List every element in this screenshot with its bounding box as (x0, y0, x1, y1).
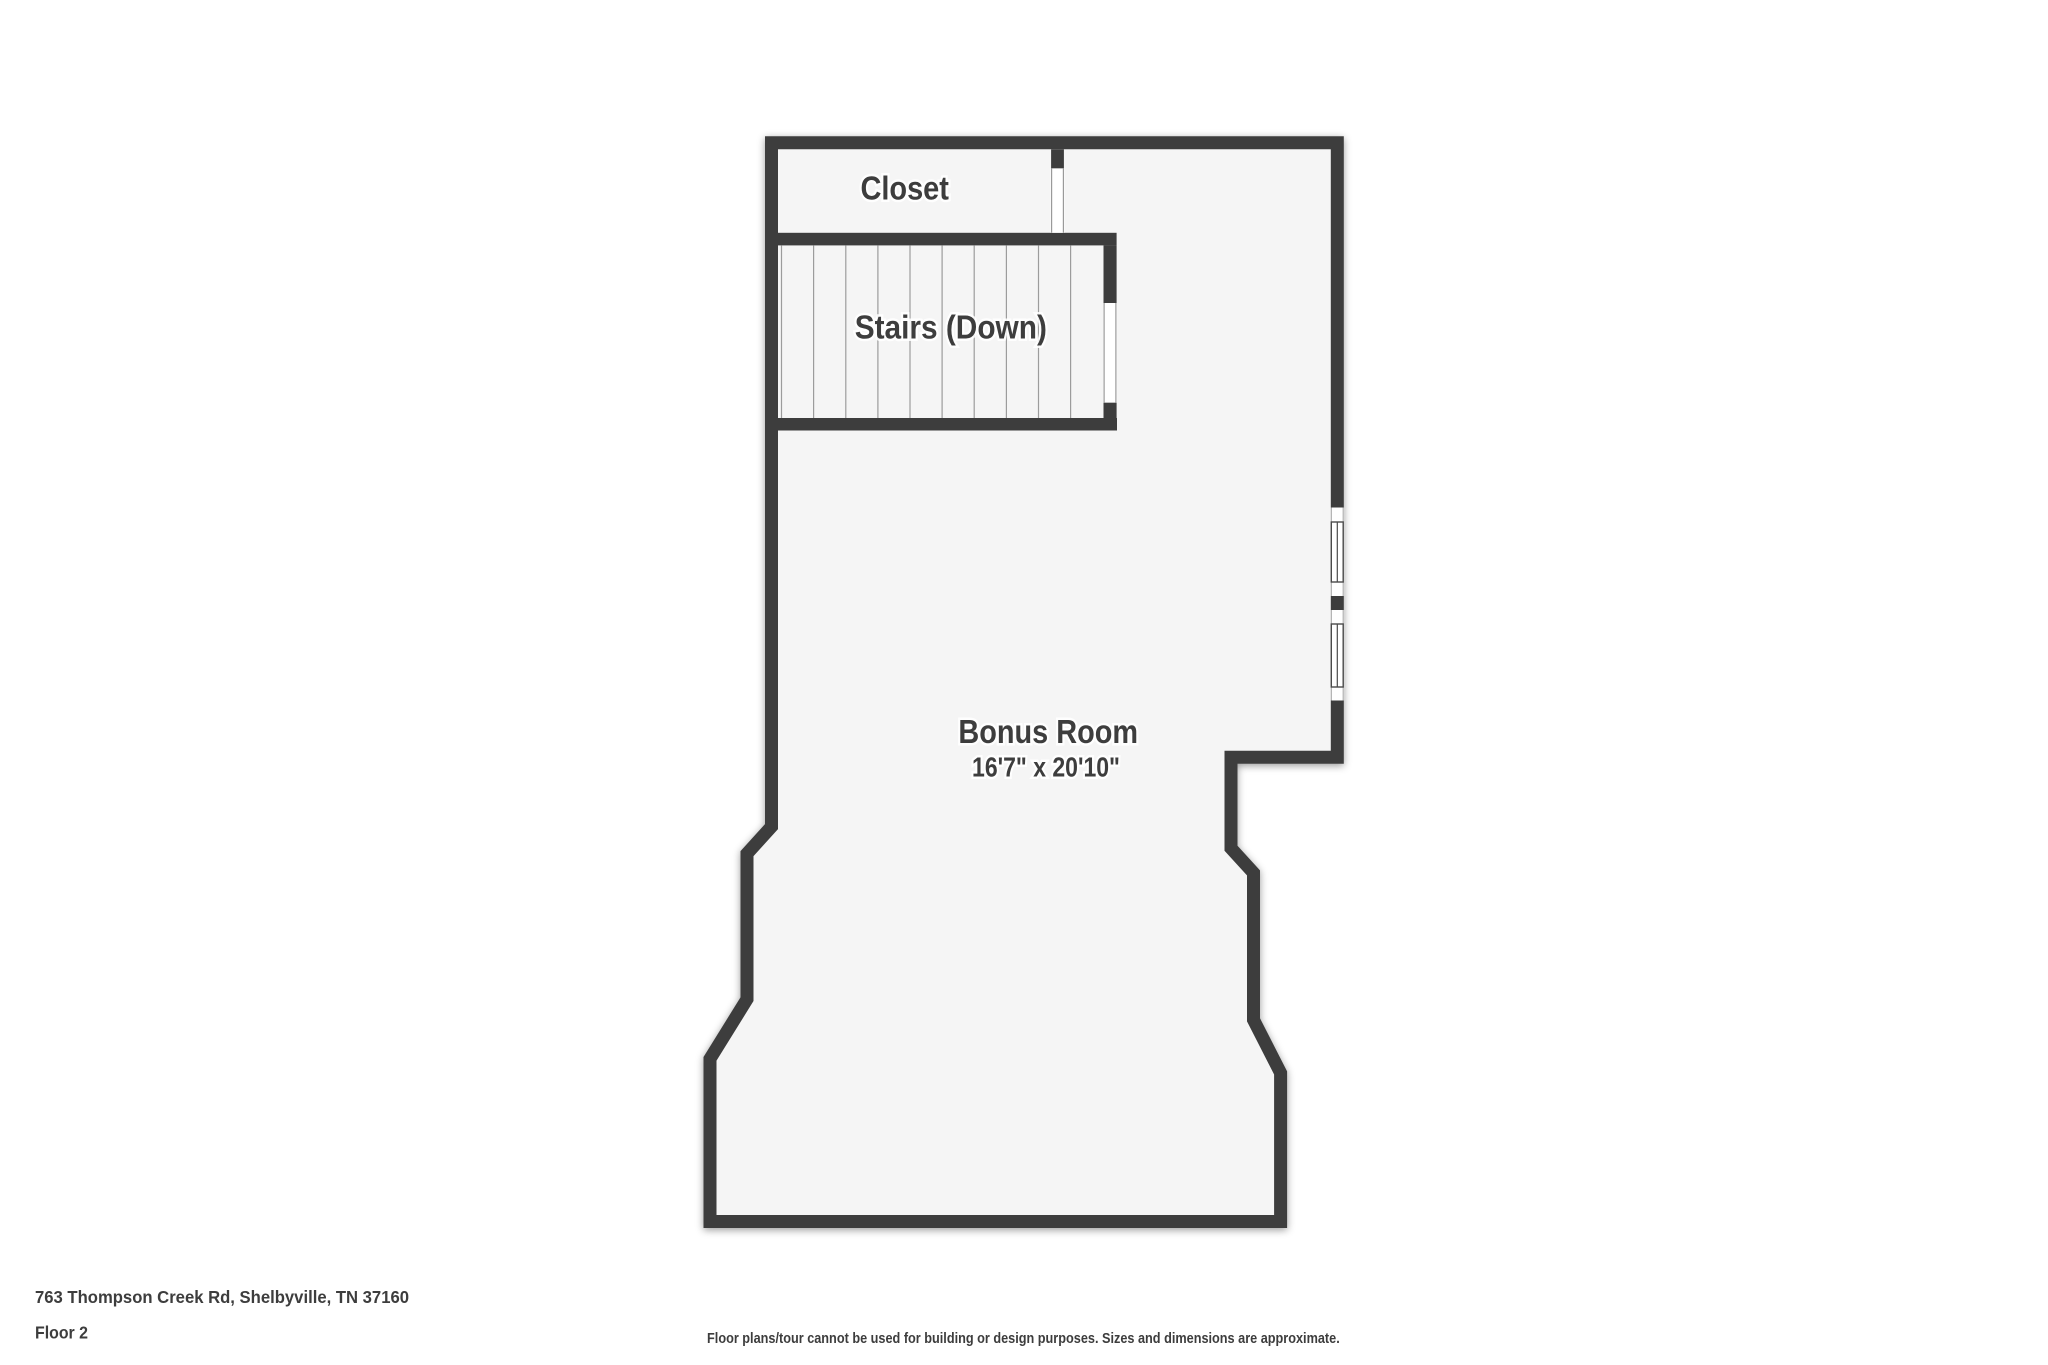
svg-text:Floor 2: Floor 2 (35, 1323, 88, 1343)
svg-text:Stairs (Down): Stairs (Down) (855, 308, 1047, 345)
svg-text:763 Thompson Creek Rd, Shelbyv: 763 Thompson Creek Rd, Shelbyville, TN 3… (35, 1287, 409, 1307)
svg-text:Closet: Closet (860, 169, 949, 206)
svg-text:16'7" x 20'10": 16'7" x 20'10" (972, 751, 1120, 782)
svg-text:Floor plans/tour cannot be use: Floor plans/tour cannot be used for buil… (707, 1330, 1340, 1347)
svg-text:Bonus Room: Bonus Room (958, 713, 1138, 750)
